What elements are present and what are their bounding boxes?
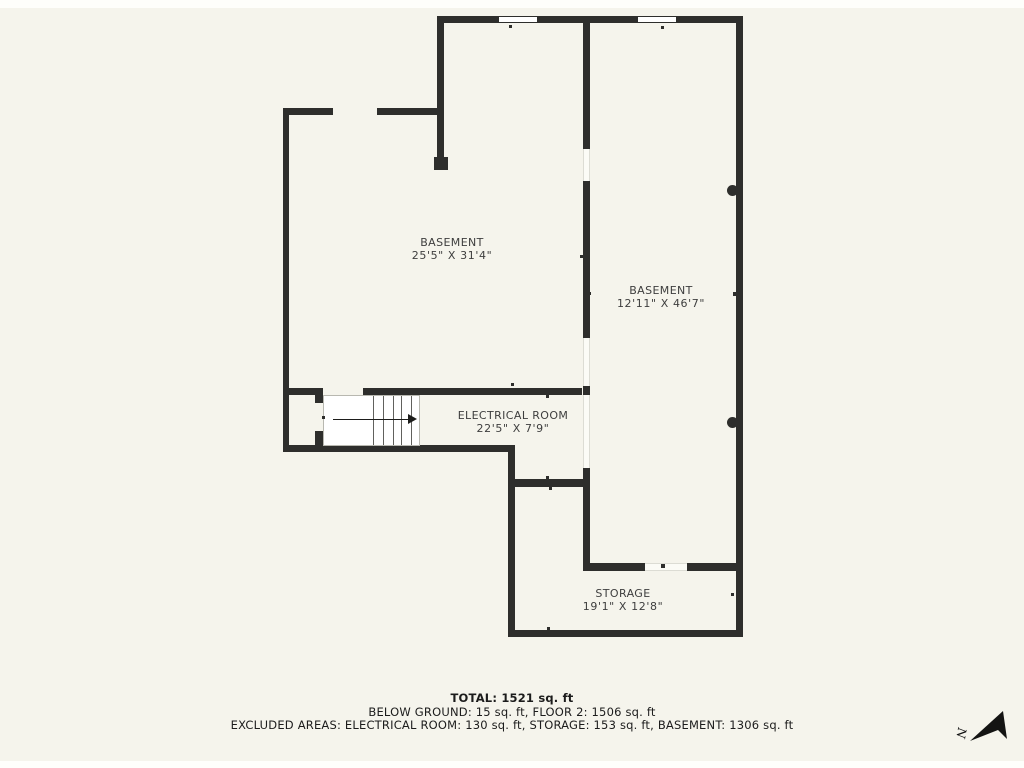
door-marker xyxy=(509,25,512,28)
wall-right xyxy=(736,16,743,637)
wall-divider-segment-b xyxy=(583,181,590,338)
door-marker xyxy=(661,26,664,29)
door-marker xyxy=(733,292,737,296)
column-marker xyxy=(727,185,738,196)
compass: N xyxy=(948,700,1020,756)
wall-storage-top-left xyxy=(583,563,645,571)
door-marker xyxy=(547,627,550,630)
door-marker xyxy=(580,255,583,258)
column-marker xyxy=(727,417,738,428)
wall-top xyxy=(437,16,743,23)
stairs-direction-arrowhead-icon xyxy=(408,414,417,424)
room-dimensions: 12'11" X 46'7" xyxy=(617,297,705,310)
wall-upper-left-horizontal-a xyxy=(283,108,333,115)
window-symbol xyxy=(498,16,538,23)
room-label-storage: STORAGE 19'1" X 12'8" xyxy=(583,587,664,613)
wall-electrical-top-left xyxy=(283,388,315,395)
wall-electrical-bottom xyxy=(283,445,515,452)
floor-plan-canvas: BASEMENT 25'5" X 31'4" BASEMENT 12'11" X… xyxy=(0,0,1024,768)
door-marker xyxy=(511,383,514,386)
room-label-basement-left: BASEMENT 25'5" X 31'4" xyxy=(412,236,493,262)
wall-electrical-top-main xyxy=(363,388,582,395)
room-dimensions: 25'5" X 31'4" xyxy=(412,249,493,262)
area-summary: TOTAL: 1521 sq. ft BELOW GROUND: 15 sq. … xyxy=(0,692,1024,733)
wall-left xyxy=(283,108,289,452)
room-name: BASEMENT xyxy=(617,284,705,297)
excluded-areas-text: EXCLUDED AREAS: ELECTRICAL ROOM: 130 sq.… xyxy=(0,719,1024,733)
stair-tread xyxy=(373,396,374,445)
wall-upper-left-vertical xyxy=(437,16,444,157)
wall-lower-left-vertical xyxy=(508,445,515,637)
wall-storage-bottom xyxy=(508,630,743,637)
room-label-basement-right: BASEMENT 12'11" X 46'7" xyxy=(617,284,705,310)
stair-tread xyxy=(401,396,402,445)
total-area-text: TOTAL: 1521 sq. ft xyxy=(0,692,1024,706)
room-dimensions: 22'5" X 7'9" xyxy=(458,422,569,435)
door-marker xyxy=(322,416,325,419)
wall-stair-jamb-top xyxy=(315,388,323,403)
door-marker xyxy=(546,476,549,479)
staircase xyxy=(323,395,420,446)
wall-upper-left-horizontal-b xyxy=(377,108,443,115)
north-label: N xyxy=(953,727,969,740)
door-opening xyxy=(583,395,590,468)
wall-divider-segment-a xyxy=(583,16,590,149)
door-opening xyxy=(645,563,687,571)
door-marker xyxy=(546,395,549,398)
wall-divider-junction xyxy=(583,386,590,395)
wall-storage-notch-top xyxy=(508,479,590,487)
room-label-electrical-room: ELECTRICAL ROOM 22'5" X 7'9" xyxy=(458,409,569,435)
wall-stair-jamb-bottom xyxy=(315,431,323,446)
room-dimensions: 19'1" X 12'8" xyxy=(583,600,664,613)
room-name: STORAGE xyxy=(583,587,664,600)
stair-tread xyxy=(393,396,394,445)
door-opening xyxy=(583,338,590,386)
stairs-direction-arrow xyxy=(333,419,411,420)
room-name: ELECTRICAL ROOM xyxy=(458,409,569,422)
wall-storage-top-right xyxy=(687,563,743,571)
below-ground-area-text: BELOW GROUND: 15 sq. ft, FLOOR 2: 1506 s… xyxy=(0,706,1024,720)
door-marker xyxy=(588,292,591,295)
door-marker xyxy=(549,487,552,490)
stair-tread xyxy=(383,396,384,445)
door-opening xyxy=(583,149,590,181)
door-marker xyxy=(661,564,665,568)
door-marker xyxy=(731,593,734,596)
room-name: BASEMENT xyxy=(412,236,493,249)
window-symbol xyxy=(637,16,677,23)
wall-end-cap xyxy=(434,157,448,170)
